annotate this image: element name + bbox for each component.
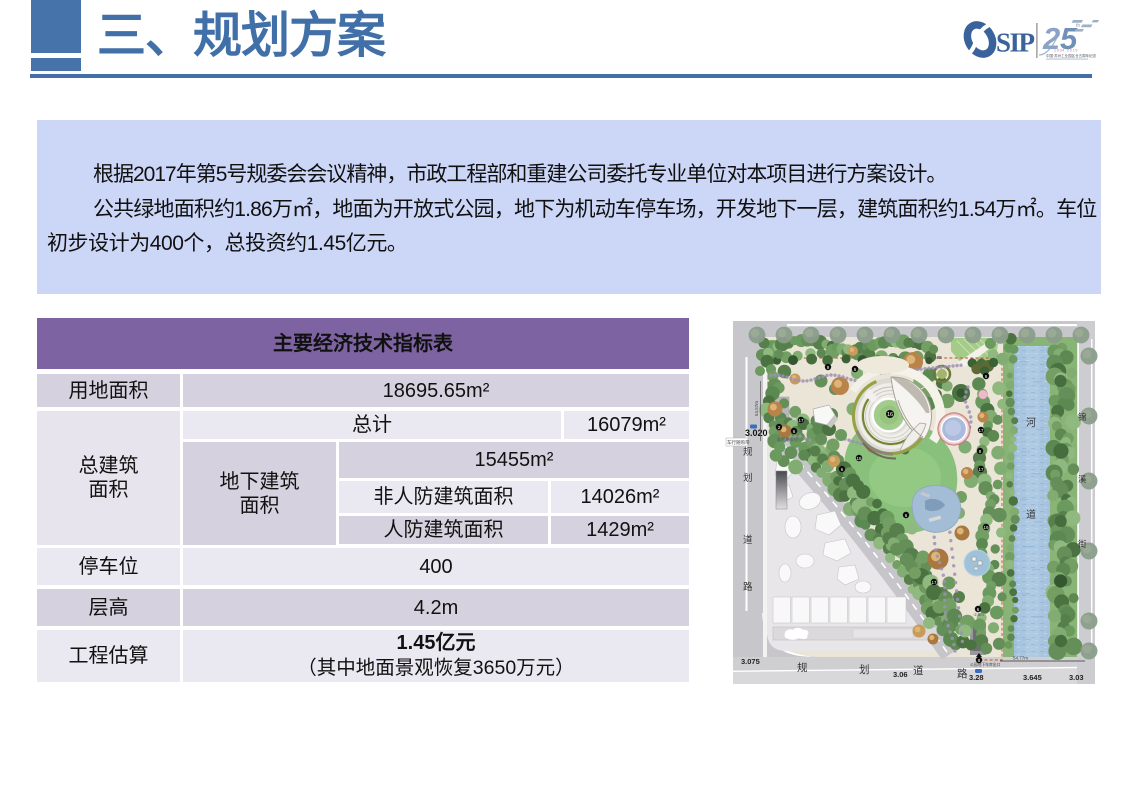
svg-text:道: 道 [1026, 508, 1036, 521]
svg-text:17: 17 [978, 428, 984, 433]
svg-text:17: 17 [931, 580, 937, 585]
svg-text:公园地下车库出口: 公园地下车库出口 [970, 662, 1001, 667]
svg-text:划: 划 [743, 472, 753, 484]
svg-text:锦: 锦 [1078, 412, 1087, 422]
svg-text:车行随购带: 车行随购带 [727, 439, 750, 446]
svg-text:非机动车位: 非机动车位 [777, 436, 798, 443]
svg-text:3.075: 3.075 [741, 657, 760, 666]
svg-text:17: 17 [978, 467, 984, 472]
svg-text:3.645: 3.645 [1023, 673, 1042, 682]
svg-text:54.77m: 54.77m [1013, 656, 1028, 661]
svg-text:道: 道 [913, 664, 924, 677]
svg-text:路: 路 [743, 581, 753, 593]
svg-text:3.06: 3.06 [893, 670, 908, 679]
svg-text:19: 19 [983, 525, 989, 530]
svg-text:规: 规 [743, 447, 753, 458]
svg-text:道: 道 [743, 534, 753, 546]
svg-text:溪: 溪 [1078, 474, 1087, 484]
svg-text:3.020: 3.020 [745, 428, 768, 438]
svg-text:规: 规 [797, 661, 808, 674]
svg-text:路: 路 [957, 667, 968, 680]
svg-text:17: 17 [798, 418, 804, 423]
svg-text:16: 16 [887, 412, 893, 418]
svg-text:18: 18 [856, 456, 862, 461]
svg-text:划: 划 [859, 663, 870, 676]
svg-text:-2.5m: -2.5m [973, 612, 984, 617]
svg-text:3.28: 3.28 [969, 673, 984, 682]
svg-text:街: 街 [1078, 539, 1087, 549]
svg-text:54.57m: 54.57m [754, 401, 759, 416]
svg-text:3.03: 3.03 [1069, 673, 1084, 682]
svg-text:河: 河 [1026, 417, 1036, 429]
